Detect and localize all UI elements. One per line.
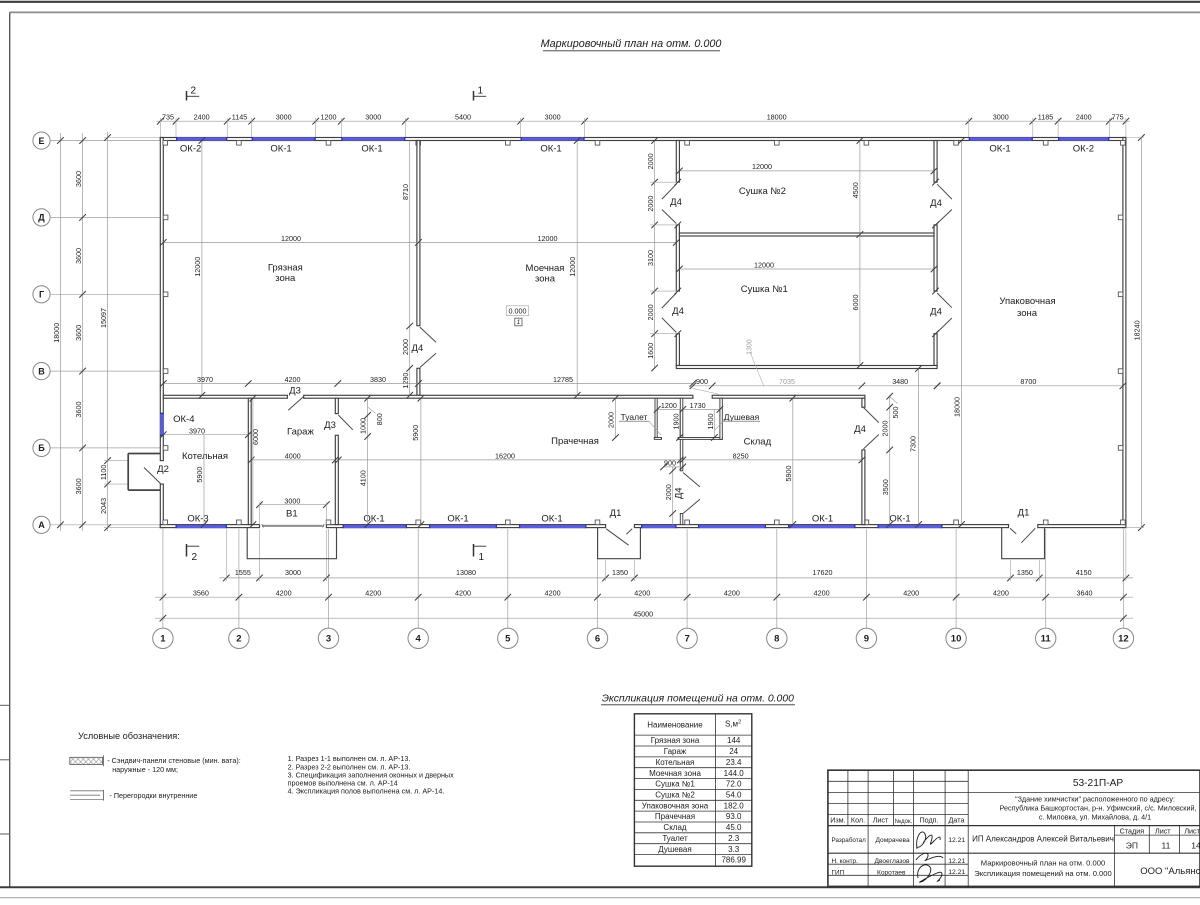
svg-text:4200: 4200 xyxy=(993,588,1009,597)
svg-text:4100: 4100 xyxy=(358,470,367,486)
svg-text:ОК-1: ОК-1 xyxy=(361,143,382,154)
svg-text:13080: 13080 xyxy=(456,568,476,577)
svg-text:45.0: 45.0 xyxy=(726,823,742,832)
svg-text:зона: зона xyxy=(275,273,296,284)
svg-text:144: 144 xyxy=(727,736,741,745)
svg-text:11: 11 xyxy=(1041,634,1052,645)
svg-text:182.0: 182.0 xyxy=(724,801,745,810)
svg-text:Гараж: Гараж xyxy=(287,426,314,437)
svg-text:14: 14 xyxy=(1191,840,1200,850)
svg-text:775: 775 xyxy=(1112,112,1124,121)
svg-text:Моечная: Моечная xyxy=(526,263,565,274)
svg-text:1185: 1185 xyxy=(1038,112,1053,121)
svg-text:4200: 4200 xyxy=(903,588,919,597)
svg-text:53-21П-АР: 53-21П-АР xyxy=(1073,778,1124,789)
svg-text:Д1: Д1 xyxy=(610,508,622,519)
svg-text:1900: 1900 xyxy=(706,414,715,430)
svg-text:1290: 1290 xyxy=(401,373,410,389)
svg-text:ОК-4: ОК-4 xyxy=(173,414,194,425)
svg-text:0.000: 0.000 xyxy=(509,306,527,315)
svg-text:2400: 2400 xyxy=(194,112,210,121)
svg-text:3600: 3600 xyxy=(74,325,83,341)
svg-text:Туалет: Туалет xyxy=(662,834,688,843)
svg-text:Котельная: Котельная xyxy=(656,758,695,767)
svg-text:4200: 4200 xyxy=(365,588,381,597)
svg-text:8700: 8700 xyxy=(1020,377,1036,386)
svg-text:наружные - 120 мм;: наружные - 120 мм; xyxy=(112,765,178,774)
svg-text:1730: 1730 xyxy=(690,401,706,410)
svg-text:Котельная: Котельная xyxy=(182,451,228,462)
svg-text:12: 12 xyxy=(1118,634,1129,645)
svg-text:17620: 17620 xyxy=(813,568,833,577)
svg-text:3830: 3830 xyxy=(370,375,386,384)
svg-text:4200: 4200 xyxy=(724,588,740,597)
svg-text:5900: 5900 xyxy=(411,425,420,441)
svg-text:12785: 12785 xyxy=(553,375,573,384)
svg-text:12000: 12000 xyxy=(281,234,301,243)
svg-text:900: 900 xyxy=(696,377,708,386)
svg-text:1: 1 xyxy=(517,319,521,326)
svg-text:9: 9 xyxy=(864,634,869,645)
svg-text:- Перегородки внутренние: - Перегородки внутренние xyxy=(110,791,198,800)
svg-text:900: 900 xyxy=(664,458,676,467)
svg-text:Условные обозначения:: Условные обозначения: xyxy=(78,731,180,741)
svg-text:1000: 1000 xyxy=(358,418,367,434)
svg-text:Д: Д xyxy=(38,213,45,223)
svg-text:"Здание химчистки" расположенн: "Здание химчистки" расположенного по адр… xyxy=(1015,795,1175,804)
svg-text:1555: 1555 xyxy=(235,568,251,577)
svg-text:16200: 16200 xyxy=(495,451,515,460)
svg-text:18000: 18000 xyxy=(52,323,61,343)
svg-text:ГИП: ГИП xyxy=(832,869,845,876)
svg-text:1200: 1200 xyxy=(321,112,337,121)
svg-text:Д4: Д4 xyxy=(672,306,684,317)
svg-text:Моечная зона: Моечная зона xyxy=(649,769,701,778)
svg-text:ОК-1: ОК-1 xyxy=(363,514,384,525)
svg-text:Прачечная: Прачечная xyxy=(655,812,695,821)
svg-text:3000: 3000 xyxy=(285,568,301,577)
svg-text:12000: 12000 xyxy=(193,257,202,277)
svg-text:93.0: 93.0 xyxy=(726,812,742,821)
svg-text:Разработал: Разработал xyxy=(832,836,867,844)
svg-text:1: 1 xyxy=(160,634,166,645)
svg-text:Д4: Д4 xyxy=(854,424,866,435)
svg-text:ОК-2: ОК-2 xyxy=(180,143,201,154)
svg-text:2000: 2000 xyxy=(646,304,655,320)
svg-text:Дата: Дата xyxy=(949,816,965,825)
svg-text:Домрачева: Домрачева xyxy=(876,837,910,844)
svg-text:500: 500 xyxy=(891,407,900,419)
svg-text:ООО "Альянс": ООО "Альянс" xyxy=(1140,866,1200,877)
svg-text:1200: 1200 xyxy=(661,401,677,410)
svg-text:Изм.: Изм. xyxy=(830,816,845,825)
svg-text:8710: 8710 xyxy=(401,184,410,200)
svg-text:3600: 3600 xyxy=(74,248,83,264)
svg-text:7300: 7300 xyxy=(909,436,918,452)
svg-text:7035: 7035 xyxy=(779,377,795,386)
svg-text:72.0: 72.0 xyxy=(726,780,742,789)
svg-text:Е: Е xyxy=(38,136,44,146)
svg-text:зона: зона xyxy=(535,274,556,285)
svg-text:ОК-1: ОК-1 xyxy=(270,143,291,154)
svg-text:2000: 2000 xyxy=(646,196,655,212)
svg-text:6: 6 xyxy=(595,634,600,645)
svg-text:1145: 1145 xyxy=(232,112,247,121)
svg-text:Д4: Д4 xyxy=(930,307,942,318)
svg-text:1350: 1350 xyxy=(612,568,628,577)
svg-text:Республика Башкортостан, р-н.: Республика Башкортостан, р-н. Уфимский, … xyxy=(1000,804,1197,813)
svg-text:3600: 3600 xyxy=(74,402,83,418)
svg-text:Лист: Лист xyxy=(873,816,889,825)
svg-text:8: 8 xyxy=(774,634,779,645)
svg-text:12000: 12000 xyxy=(568,257,577,277)
svg-text:6000: 6000 xyxy=(251,429,260,445)
svg-text:12000: 12000 xyxy=(752,162,772,171)
svg-text:1600: 1600 xyxy=(646,343,655,359)
svg-text:3: 3 xyxy=(326,634,331,645)
svg-text:Д3: Д3 xyxy=(289,386,301,397)
svg-text:12.21: 12.21 xyxy=(948,837,965,844)
svg-text:Прачечная: Прачечная xyxy=(551,436,599,447)
svg-text:Сушка №2: Сушка №2 xyxy=(739,186,786,197)
svg-text:Д4: Д4 xyxy=(412,343,424,354)
svg-text:4200: 4200 xyxy=(634,588,650,597)
svg-text:3100: 3100 xyxy=(646,250,655,266)
svg-text:ОК-1: ОК-1 xyxy=(447,514,468,525)
svg-text:3000: 3000 xyxy=(545,112,561,121)
svg-text:ОК-1: ОК-1 xyxy=(889,514,910,525)
svg-text:4150: 4150 xyxy=(1076,568,1092,577)
svg-text:Стадия: Стадия xyxy=(1120,826,1145,835)
svg-text:Наименование: Наименование xyxy=(647,721,703,730)
svg-text:1: 1 xyxy=(479,552,485,563)
svg-text:3000: 3000 xyxy=(365,112,381,121)
svg-text:зона: зона xyxy=(1017,308,1038,319)
svg-text:4200: 4200 xyxy=(545,588,561,597)
svg-text:144.0: 144.0 xyxy=(724,769,745,778)
svg-text:6000: 6000 xyxy=(851,295,860,311)
svg-text:Упаковочная: Упаковочная xyxy=(999,296,1055,307)
svg-text:2.3: 2.3 xyxy=(728,834,740,843)
svg-text:Маркировочный план на отм. 0.0: Маркировочный план на отм. 0.000 xyxy=(541,38,722,50)
svg-text:Сушка №1: Сушка №1 xyxy=(655,780,695,789)
svg-text:2000: 2000 xyxy=(607,412,616,428)
svg-text:18000: 18000 xyxy=(953,397,962,417)
svg-text:ОК-1: ОК-1 xyxy=(540,143,561,154)
svg-text:12000: 12000 xyxy=(538,234,558,243)
svg-text:ОК-2: ОК-2 xyxy=(1073,143,1094,154)
svg-text:2000: 2000 xyxy=(881,421,890,437)
svg-text:Д4: Д4 xyxy=(930,198,942,209)
svg-text:4: 4 xyxy=(416,634,422,645)
svg-text:Душевая: Душевая xyxy=(724,412,760,422)
svg-text:Листов: Листов xyxy=(1184,826,1200,835)
svg-text:5400: 5400 xyxy=(455,112,471,121)
svg-text:Д1: Д1 xyxy=(1018,507,1030,518)
svg-text:Кол.: Кол. xyxy=(851,816,865,825)
svg-text:7: 7 xyxy=(684,634,689,645)
svg-text:23.4: 23.4 xyxy=(726,758,742,767)
svg-text:1300: 1300 xyxy=(746,339,753,355)
svg-text:4200: 4200 xyxy=(285,375,301,384)
svg-text:Двоеглазов: Двоеглазов xyxy=(875,858,911,865)
svg-text:Подп.: Подп. xyxy=(919,816,938,825)
svg-text:1100: 1100 xyxy=(99,465,108,480)
svg-text:3.3: 3.3 xyxy=(728,845,740,854)
svg-text:3000: 3000 xyxy=(993,112,1009,121)
svg-text:8250: 8250 xyxy=(733,451,749,460)
svg-text:Лист: Лист xyxy=(1155,826,1171,835)
svg-text:12.21: 12.21 xyxy=(948,869,965,876)
svg-text:2: 2 xyxy=(192,552,198,563)
svg-text:5900: 5900 xyxy=(195,467,204,483)
svg-text:3600: 3600 xyxy=(74,171,83,187)
svg-text:ОК-1: ОК-1 xyxy=(541,514,562,525)
svg-text:3970: 3970 xyxy=(189,426,205,435)
svg-text:Гараж: Гараж xyxy=(664,747,687,756)
svg-text:3480: 3480 xyxy=(892,377,908,386)
svg-text:Г: Г xyxy=(39,290,44,300)
svg-text:18000: 18000 xyxy=(767,112,787,121)
svg-text:45000: 45000 xyxy=(633,610,653,619)
svg-text:2000: 2000 xyxy=(646,153,655,169)
svg-text:2: 2 xyxy=(191,85,197,96)
svg-text:2043: 2043 xyxy=(99,498,108,514)
svg-text:54.0: 54.0 xyxy=(726,791,742,800)
svg-text:5: 5 xyxy=(505,634,511,645)
svg-text:3500: 3500 xyxy=(881,479,890,495)
svg-text:Экспликация помещений на отм.: Экспликация помещений на отм. 0.000 xyxy=(974,869,1111,878)
svg-text:4500: 4500 xyxy=(851,182,860,198)
svg-text:№док.: №док. xyxy=(895,818,913,825)
svg-text:3000: 3000 xyxy=(276,112,292,121)
svg-text:3640: 3640 xyxy=(1077,588,1093,597)
svg-text:786.99: 786.99 xyxy=(721,856,746,865)
svg-text:11: 11 xyxy=(1161,840,1170,850)
svg-text:Маркировочный план на отм. 0.0: Маркировочный план на отм. 0.000 xyxy=(981,859,1105,868)
svg-text:Склад: Склад xyxy=(663,823,686,832)
svg-text:ОК-1: ОК-1 xyxy=(989,143,1010,154)
svg-text:Б: Б xyxy=(38,443,45,453)
svg-text:ЭП: ЭП xyxy=(1126,840,1138,850)
svg-text:Грязная зона: Грязная зона xyxy=(651,736,700,745)
svg-text:Д3: Д3 xyxy=(324,420,336,431)
svg-text:18240: 18240 xyxy=(1133,320,1142,340)
svg-text:Д4: Д4 xyxy=(674,487,685,499)
svg-text:12000: 12000 xyxy=(754,260,774,269)
svg-text:ОК-1: ОК-1 xyxy=(812,514,833,525)
svg-text:А: А xyxy=(38,520,45,530)
svg-text:1: 1 xyxy=(478,85,484,96)
svg-text:3000: 3000 xyxy=(284,496,300,505)
svg-text:4200: 4200 xyxy=(814,588,830,597)
svg-text:В1: В1 xyxy=(286,509,298,520)
svg-text:3970: 3970 xyxy=(197,375,213,384)
svg-text:800: 800 xyxy=(375,413,384,425)
svg-text:4000: 4000 xyxy=(285,451,301,460)
svg-text:Коротаев: Коротаев xyxy=(877,869,906,876)
svg-text:Сушка №2: Сушка №2 xyxy=(655,791,695,800)
svg-text:4. Экспликация полов выполнена: 4. Экспликация полов выполнена см. л. АР… xyxy=(288,786,445,795)
svg-text:Туалет: Туалет xyxy=(621,412,648,422)
svg-text:Экспликация помещений на отм.: Экспликация помещений на отм. 0.000 xyxy=(602,694,794,705)
svg-text:4200: 4200 xyxy=(455,588,471,597)
svg-text:2000: 2000 xyxy=(401,339,410,355)
svg-text:2000: 2000 xyxy=(664,484,673,500)
svg-text:Д2: Д2 xyxy=(157,464,169,475)
svg-text:Душевая: Душевая xyxy=(658,845,691,854)
svg-text:15097: 15097 xyxy=(99,308,108,328)
svg-text:2400: 2400 xyxy=(1076,112,1092,121)
svg-text:1350: 1350 xyxy=(1017,568,1033,577)
svg-text:10: 10 xyxy=(951,634,962,645)
svg-text:Д4: Д4 xyxy=(670,197,682,208)
svg-text:1900: 1900 xyxy=(671,414,680,430)
svg-text:24: 24 xyxy=(729,747,738,756)
svg-text:3560: 3560 xyxy=(193,588,209,597)
svg-text:2: 2 xyxy=(236,634,241,645)
svg-text:ИП Александров Алексей Виталье: ИП Александров Алексей Витальевич xyxy=(972,835,1114,844)
svg-text:В: В xyxy=(38,366,45,376)
svg-text:Склад: Склад xyxy=(744,436,772,447)
svg-text:4200: 4200 xyxy=(276,588,292,597)
svg-text:5900: 5900 xyxy=(784,466,793,482)
svg-text:Сушка №1: Сушка №1 xyxy=(741,284,788,295)
svg-text:Упаковочная зона: Упаковочная зона xyxy=(642,801,709,810)
svg-text:735: 735 xyxy=(162,112,174,121)
svg-text:Н. контр.: Н. контр. xyxy=(832,858,859,865)
svg-text:с. Миловка, ул. Михайлова, д.: с. Миловка, ул. Михайлова, д. 4/1 xyxy=(1039,813,1151,822)
svg-text:12.21: 12.21 xyxy=(948,858,965,865)
svg-text:Грязная: Грязная xyxy=(268,263,303,274)
svg-text:3600: 3600 xyxy=(74,478,83,494)
